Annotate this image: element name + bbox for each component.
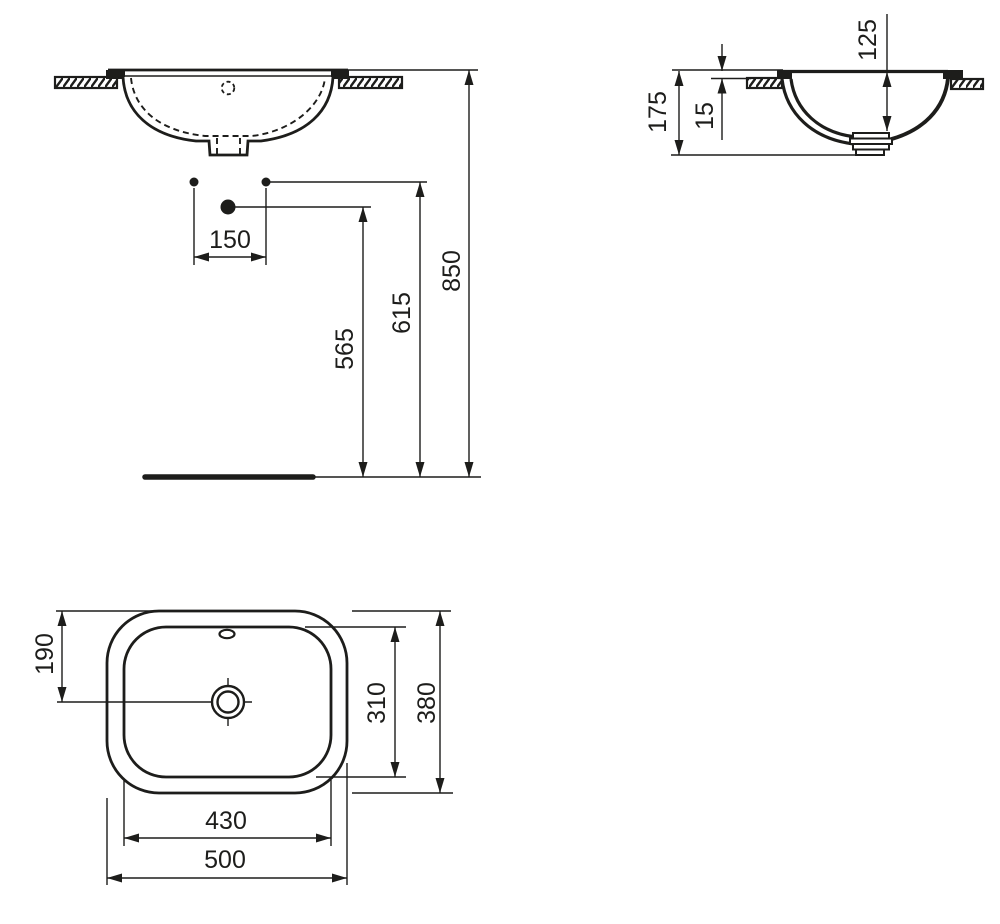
- side-hatch-right: [951, 79, 983, 89]
- front-view: 150 565 615 850: [55, 70, 481, 477]
- dim-label-190: 190: [31, 633, 59, 675]
- dim-565: 565: [331, 207, 363, 477]
- countertop-hatch-right: [339, 77, 402, 88]
- side-wall-left-inner: [791, 79, 856, 137]
- dim-label-310: 310: [363, 682, 391, 724]
- dim-label-500: 500: [204, 846, 246, 874]
- dim-label-850: 850: [438, 250, 466, 292]
- dim-label-125: 125: [854, 19, 882, 61]
- dim-label-150: 150: [209, 226, 251, 254]
- technical-drawing-page: 150 565 615 850: [0, 0, 1000, 924]
- side-hatch-left: [747, 78, 782, 88]
- basin-dimension-drawing: 150 565 615 850: [0, 0, 1000, 924]
- dim-615: 615: [388, 182, 420, 477]
- dim-label-15: 15: [691, 102, 719, 130]
- fixing-hole-left-dot: [190, 178, 199, 187]
- dim-label-565: 565: [331, 328, 359, 370]
- side-rim-right-tab: [943, 70, 963, 79]
- plan-drain: [57, 678, 252, 726]
- dim-label-380: 380: [413, 682, 441, 724]
- dim-850: 850: [438, 70, 469, 477]
- dim-190: 190: [31, 611, 165, 702]
- dim-430: 430: [124, 780, 331, 846]
- countertop-hatch-left: [55, 77, 117, 88]
- dim-150: 150: [194, 188, 266, 265]
- plan-view: 190 310 380 430 500: [31, 611, 453, 885]
- side-view: 175 15 125: [644, 14, 983, 155]
- dim-310: 310: [305, 627, 406, 777]
- dim-label-615: 615: [388, 292, 416, 334]
- dim-15: 15: [691, 44, 751, 140]
- side-wall-right: [884, 78, 948, 141]
- plan-overflow-slot: [220, 630, 235, 638]
- dim-label-175: 175: [644, 91, 672, 133]
- dim-label-430: 430: [205, 807, 247, 835]
- side-drain-boss: [850, 133, 892, 155]
